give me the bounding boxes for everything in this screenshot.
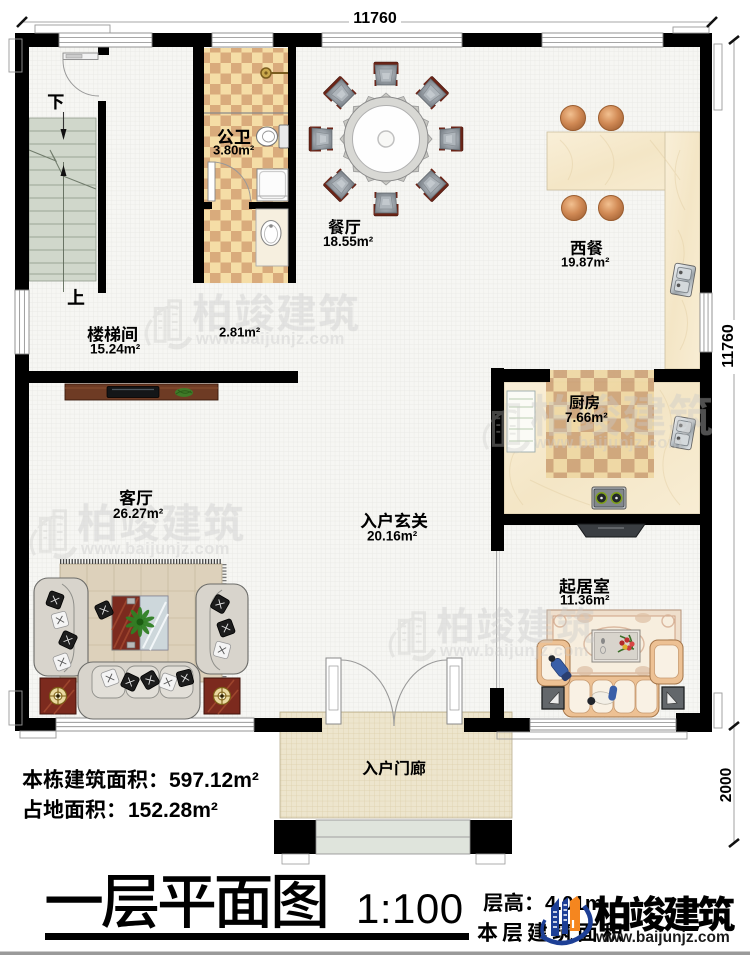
svg-text:18.55m²: 18.55m² [323,234,374,249]
svg-text:www.baijunjz.com: www.baijunjz.com [533,434,683,452]
svg-text:19.87m²: 19.87m² [561,255,610,270]
svg-text:11760: 11760 [720,324,737,368]
svg-text:7.66m²: 7.66m² [565,410,608,425]
svg-text:597.12m²: 597.12m² [169,769,259,792]
svg-text:2000: 2000 [718,768,735,802]
svg-text:www.baijunjz.com: www.baijunjz.com [80,540,230,558]
svg-text:www.baijunjz.com: www.baijunjz.com [595,929,730,946]
svg-text:15.24m²: 15.24m² [90,342,141,357]
svg-text:3.80m²: 3.80m² [213,143,255,158]
svg-text:152.28m²: 152.28m² [128,799,218,822]
svg-text:11760: 11760 [353,10,397,27]
svg-text:20.16m²: 20.16m² [367,529,418,544]
svg-text:www.baijunjz.com: www.baijunjz.com [195,330,345,348]
svg-text:www.baijunjz.com: www.baijunjz.com [439,642,589,660]
svg-text:11.36m²: 11.36m² [560,593,610,608]
svg-text:2.81m²: 2.81m² [219,325,261,340]
svg-text:1:100: 1:100 [356,885,464,932]
svg-text:26.27m²: 26.27m² [113,506,164,521]
